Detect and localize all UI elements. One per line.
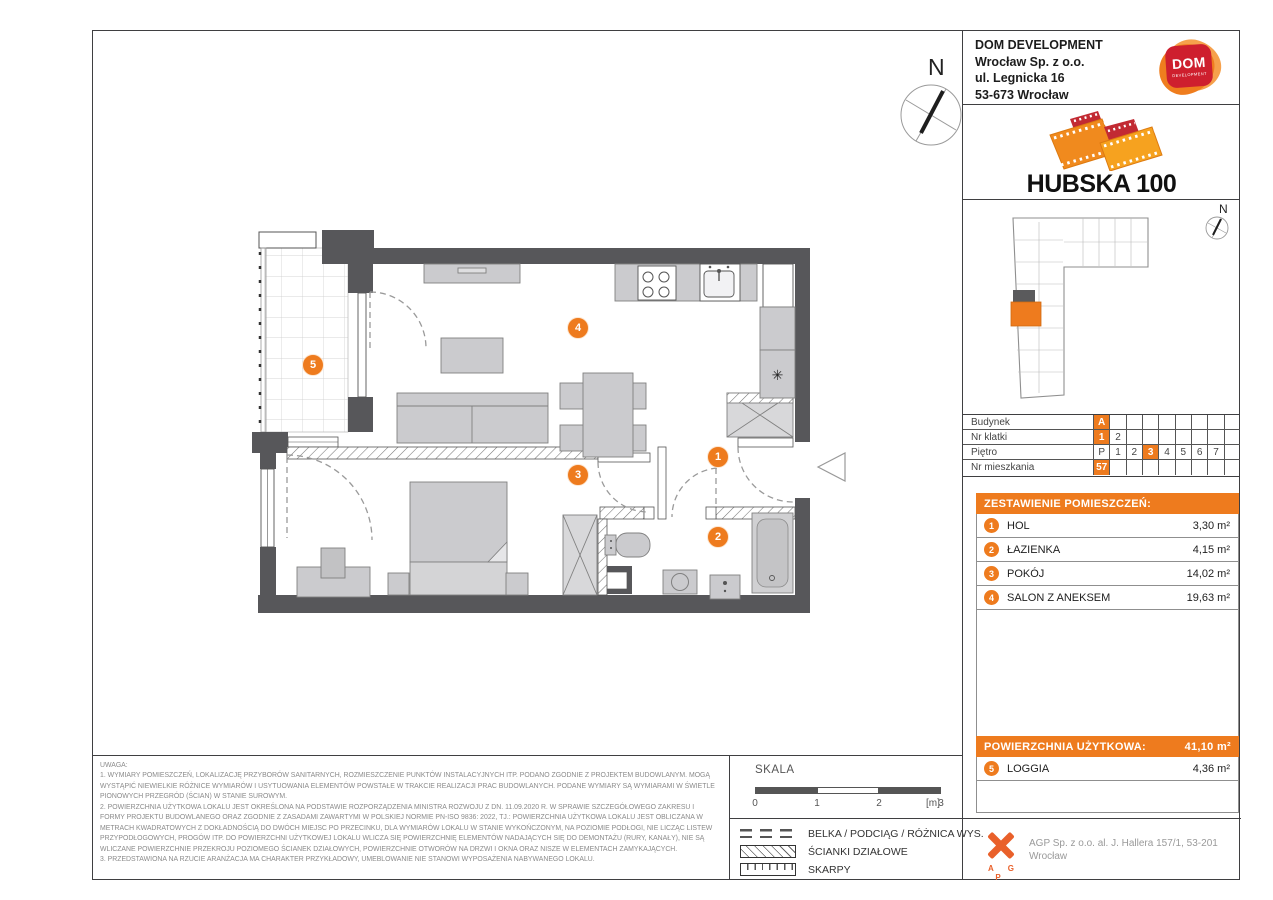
coffee-table — [441, 338, 503, 373]
room-marker-lazienka: 2 — [707, 526, 729, 548]
compass-north-label: N — [928, 54, 945, 81]
partition-symbol-icon — [740, 845, 796, 858]
note-3: 3. PRZEDSTAWIONA NA RZUCIE ARANŻACJA MA … — [100, 855, 719, 865]
table-row: Piętro P 1 2 3 4 5 6 7 — [963, 445, 1240, 460]
agp-logo-icon: A G P — [981, 827, 1021, 873]
chair — [560, 383, 586, 409]
tv-box — [321, 548, 345, 578]
site-plan-box: N — [963, 200, 1240, 415]
chair — [560, 425, 586, 451]
dining-table — [583, 373, 633, 457]
shaft-box — [763, 264, 793, 307]
site-plan-drawing — [963, 200, 1241, 415]
room-marker-hol: 1 — [707, 446, 729, 468]
scale-bar — [755, 787, 941, 794]
cabinet — [760, 307, 795, 350]
schedule-spacer — [976, 610, 1239, 736]
room-row-salon: 4 SALON Z ANEKSEM 19,63 m² — [976, 586, 1239, 610]
room-row-lazienka: 2 ŁAZIENKA 4,15 m² — [976, 538, 1239, 562]
tv-cabinet — [424, 264, 520, 283]
nightstand — [388, 573, 409, 595]
beam-symbol-icon — [740, 829, 796, 838]
room-marker-pokoj: 3 — [567, 464, 589, 486]
room-area: 3,30 m² — [1193, 520, 1230, 532]
room-marker-loggia: 5 — [302, 354, 324, 376]
film-reel-icon — [1040, 109, 1164, 171]
shaft — [605, 572, 627, 589]
room-row-hol: 1 HOL 3,30 m² — [976, 514, 1239, 538]
site-compass-north-label: N — [1219, 202, 1228, 216]
usable-area-value: 41,10 m² — [1185, 741, 1231, 753]
legend-item-beam: BELKA / PODCIĄG / RÓŻNICA WYS. — [740, 825, 962, 842]
note-1: 1. WYMIARY POMIESZCZEŃ, LOKALIZACJĘ PRZY… — [100, 771, 719, 802]
slope-symbol-icon — [740, 863, 796, 876]
usable-area-bar: POWIERZCHNIA UŻYTKOWA: 41,10 m² — [976, 736, 1239, 757]
room-area: 4,15 m² — [1193, 544, 1230, 556]
note-2: 2. POWIERZCHNIA UŻYTKOWA LOKALU JEST OKR… — [100, 803, 719, 855]
title-block: DOM DEVELOPMENT Wrocław Sp. z o.o. ul. L… — [962, 30, 1240, 880]
scale-unit: [m] — [926, 798, 940, 809]
room-number-badge: 5 — [984, 761, 999, 776]
architect-box: A G P AGP Sp. z o.o. al. J. Hallera 157/… — [963, 818, 1241, 880]
room-schedule: ZESTAWIENIE POMIESZCZEŃ: 1 HOL 3,30 m² 2… — [976, 493, 1239, 813]
floor-plan-area: ✳ — [92, 30, 962, 755]
entrance-arrow-icon — [818, 453, 845, 481]
sofa — [397, 393, 548, 443]
scale-label: SKALA — [755, 764, 795, 776]
site-compass-icon — [1206, 217, 1228, 239]
scale-box: SKALA 0 1 2 3 [m] — [730, 755, 962, 818]
bed — [410, 482, 507, 562]
legend-item-partition: ŚCIANKI DZIAŁOWE — [740, 843, 962, 860]
svg-text:✳: ✳ — [772, 367, 784, 383]
room-area: 19,63 m² — [1187, 592, 1230, 604]
bathroom — [605, 513, 793, 599]
bathroom-sink — [710, 575, 740, 599]
room-schedule-header: ZESTAWIENIE POMIESZCZEŃ: — [976, 493, 1239, 514]
notes-title: UWAGA: — [100, 761, 719, 771]
unit-info-table: Budynek A Nr klatki 1 2 — [963, 415, 1240, 477]
room-row-pokoj: 3 POKÓJ 14,02 m² — [976, 562, 1239, 586]
project-title: HUBSKA 100 — [963, 170, 1240, 199]
room-area: 14,02 m² — [1187, 568, 1230, 580]
schedule-spacer — [976, 781, 1239, 813]
highlighted-unit — [1011, 302, 1041, 326]
room-marker-salon: 4 — [567, 317, 589, 339]
table-row: Nr mieszkania 57 — [963, 460, 1240, 475]
floor-plan-drawing: ✳ — [92, 30, 962, 755]
room-area: 4,36 m² — [1193, 763, 1230, 775]
room-number-badge: 3 — [984, 566, 999, 581]
developer-box: DOM DEVELOPMENT Wrocław Sp. z o.o. ul. L… — [963, 30, 1240, 105]
kitchen: ✳ — [615, 264, 795, 398]
room-number-badge: 4 — [984, 590, 999, 605]
dom-development-logo: DOM DEVELOPMENT — [1159, 38, 1223, 96]
toilet — [616, 533, 650, 557]
compass-icon — [901, 85, 961, 145]
room-number-badge: 2 — [984, 542, 999, 557]
room-number-badge: 1 — [984, 518, 999, 533]
floor-plan-sheet: ✳ — [0, 0, 1273, 900]
nightstand — [506, 573, 528, 595]
table-row: Nr klatki 1 2 — [963, 430, 1240, 445]
room-name: ŁAZIENKA — [1007, 544, 1193, 556]
notes: UWAGA: 1. WYMIARY POMIESZCZEŃ, LOKALIZAC… — [92, 755, 730, 880]
room-name: HOL — [1007, 520, 1193, 532]
architect-address: AGP Sp. z o.o. al. J. Hallera 157/1, 53-… — [1029, 819, 1233, 881]
project-logo-box: HUBSKA 100 — [963, 105, 1240, 200]
room-name: POKÓJ — [1007, 568, 1187, 580]
room-name: LOGGIA — [1007, 763, 1193, 775]
legend: BELKA / PODCIĄG / RÓŻNICA WYS. ŚCIANKI D… — [730, 818, 962, 880]
table-row: Budynek A — [963, 415, 1240, 430]
room-row-loggia: 5 LOGGIA 4,36 m² — [976, 757, 1239, 781]
legend-item-slope: SKARPY — [740, 861, 962, 878]
room-name: SALON Z ANEKSEM — [1007, 592, 1187, 604]
